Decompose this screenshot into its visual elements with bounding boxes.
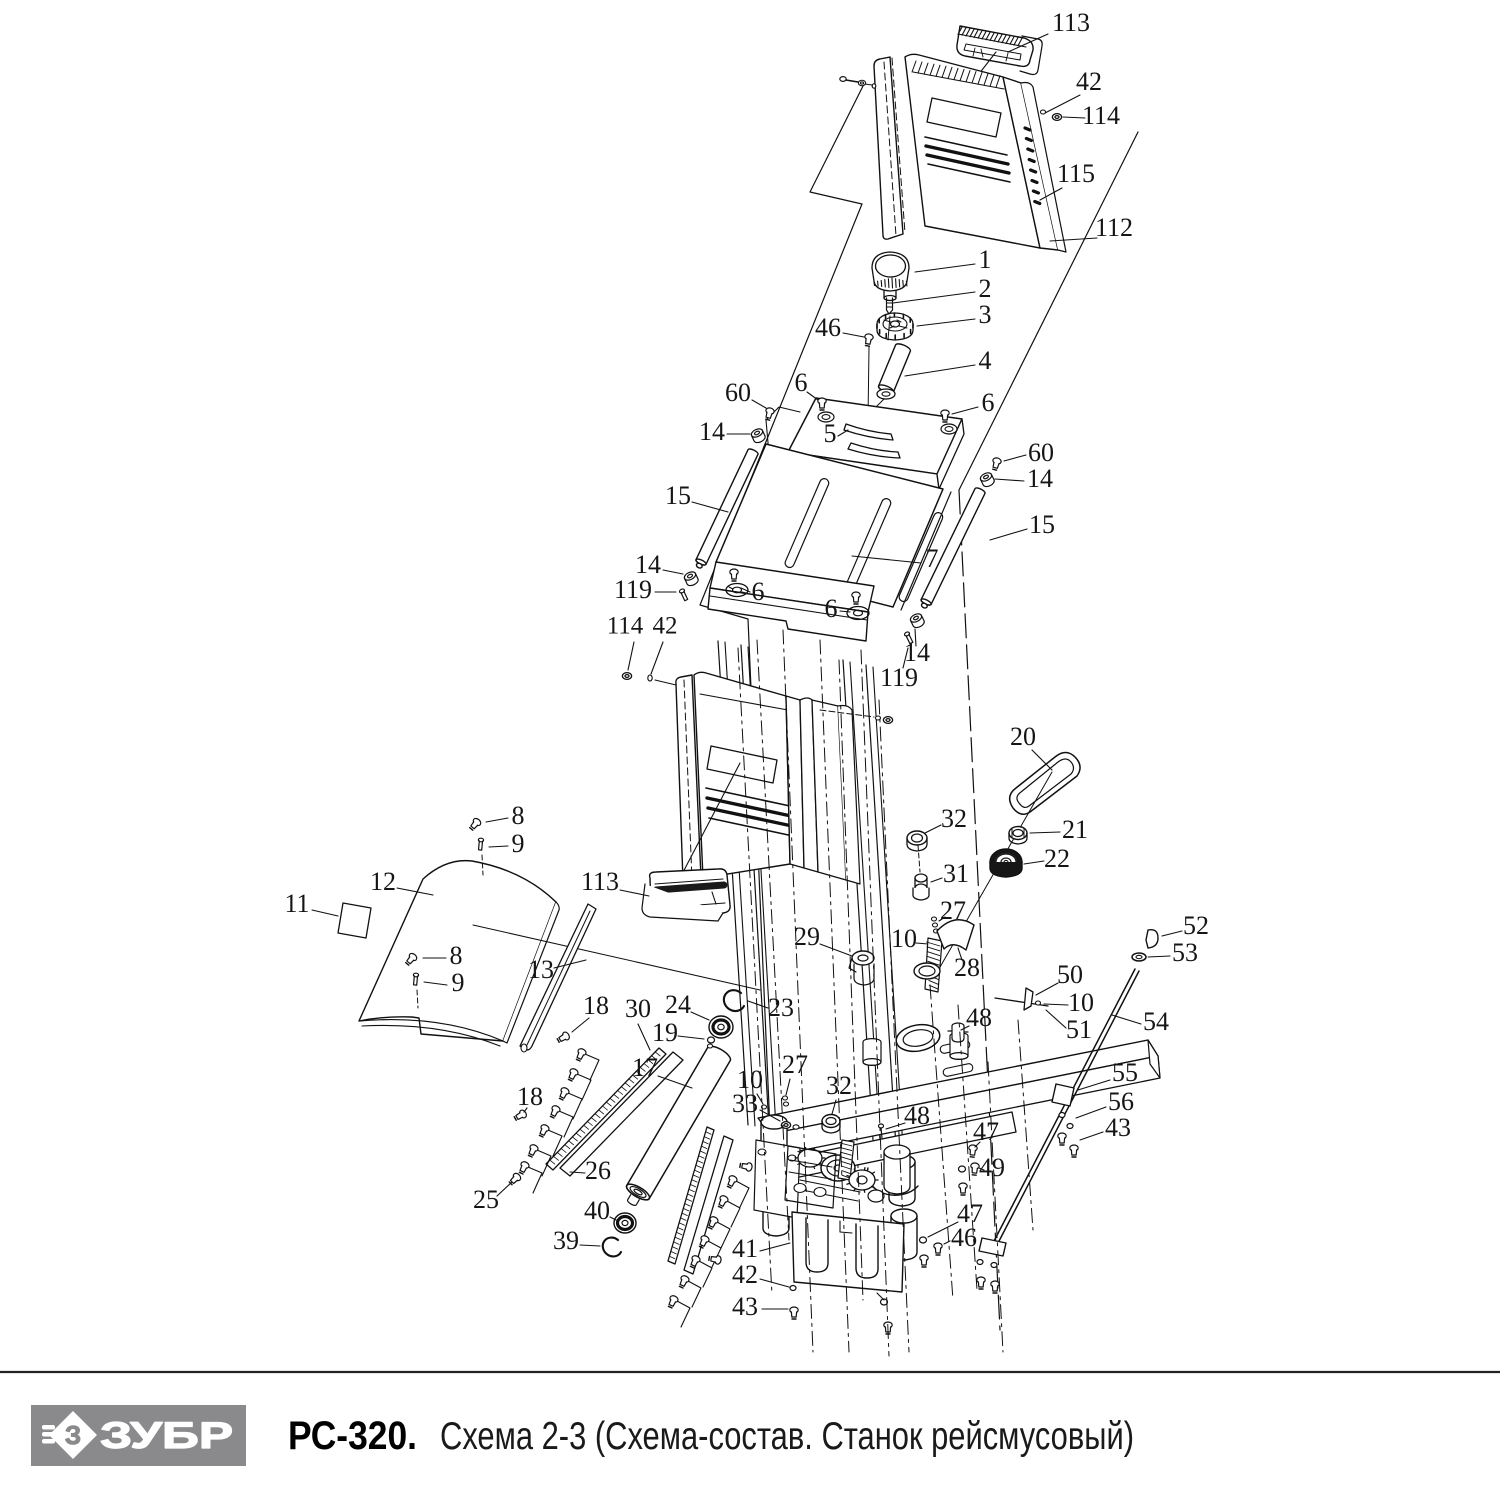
svg-text:12: 12 xyxy=(370,867,396,896)
svg-text:32: 32 xyxy=(826,1071,852,1100)
svg-text:3: 3 xyxy=(979,300,992,329)
svg-text:8: 8 xyxy=(450,941,463,970)
svg-text:14: 14 xyxy=(699,417,725,446)
svg-text:113: 113 xyxy=(1052,8,1090,37)
svg-text:114: 114 xyxy=(607,613,644,640)
svg-text:27: 27 xyxy=(782,1050,808,1079)
svg-text:20: 20 xyxy=(1010,722,1036,751)
svg-text:11: 11 xyxy=(284,889,309,918)
svg-text:25: 25 xyxy=(473,1185,499,1214)
svg-text:56: 56 xyxy=(1108,1087,1134,1116)
svg-text:9: 9 xyxy=(452,968,465,997)
svg-text:23: 23 xyxy=(768,993,794,1022)
svg-text:8: 8 xyxy=(512,801,525,830)
svg-text:7: 7 xyxy=(926,544,939,573)
svg-text:41: 41 xyxy=(732,1234,758,1263)
svg-text:55: 55 xyxy=(1112,1058,1138,1087)
svg-text:21: 21 xyxy=(1062,815,1088,844)
svg-text:119: 119 xyxy=(614,575,652,604)
svg-text:6: 6 xyxy=(795,368,808,397)
svg-text:60: 60 xyxy=(1028,438,1054,467)
svg-text:43: 43 xyxy=(1105,1113,1131,1142)
svg-text:113: 113 xyxy=(581,867,619,896)
svg-text:13: 13 xyxy=(528,955,554,984)
svg-text:4: 4 xyxy=(979,346,992,375)
svg-text:48: 48 xyxy=(966,1003,992,1032)
svg-text:6: 6 xyxy=(825,594,838,623)
svg-text:46: 46 xyxy=(815,313,841,342)
svg-text:ЗУБР: ЗУБР xyxy=(100,1415,233,1456)
svg-text:22: 22 xyxy=(1044,844,1070,873)
svg-text:51: 51 xyxy=(1066,1015,1092,1044)
svg-text:48: 48 xyxy=(904,1101,930,1130)
svg-text:6: 6 xyxy=(752,577,765,606)
svg-text:60: 60 xyxy=(725,378,751,407)
svg-text:1: 1 xyxy=(979,245,992,274)
svg-text:30: 30 xyxy=(625,994,651,1023)
svg-text:9: 9 xyxy=(512,829,525,858)
svg-text:10: 10 xyxy=(737,1065,763,1094)
svg-text:14: 14 xyxy=(1027,464,1053,493)
svg-text:З: З xyxy=(65,1420,81,1450)
svg-text:115: 115 xyxy=(1057,159,1095,188)
svg-text:112: 112 xyxy=(1095,213,1133,242)
svg-text:43: 43 xyxy=(732,1292,758,1321)
svg-text:18: 18 xyxy=(517,1082,543,1111)
svg-text:2: 2 xyxy=(979,274,992,303)
svg-text:53: 53 xyxy=(1172,938,1198,967)
svg-text:18: 18 xyxy=(583,991,609,1020)
svg-text:114: 114 xyxy=(1082,101,1120,130)
svg-text:42: 42 xyxy=(732,1260,758,1289)
svg-text:15: 15 xyxy=(1029,510,1055,539)
svg-text:31: 31 xyxy=(943,859,969,888)
svg-text:39: 39 xyxy=(553,1226,579,1255)
svg-text:119: 119 xyxy=(880,663,918,692)
svg-text:19: 19 xyxy=(652,1018,678,1047)
svg-text:10: 10 xyxy=(891,924,917,953)
svg-text:49: 49 xyxy=(979,1153,1005,1182)
svg-text:40: 40 xyxy=(584,1196,610,1225)
svg-text:52: 52 xyxy=(1183,911,1209,940)
svg-text:50: 50 xyxy=(1057,960,1083,989)
svg-text:Схема 2-3 (Схема-состав. Стано: Схема 2-3 (Схема-состав. Станок рейсмусо… xyxy=(440,1415,1134,1458)
svg-text:РС-320.: РС-320. xyxy=(288,1414,417,1458)
svg-text:42: 42 xyxy=(653,613,678,640)
svg-text:6: 6 xyxy=(982,388,995,417)
svg-text:17: 17 xyxy=(632,1053,658,1082)
svg-text:32: 32 xyxy=(941,804,967,833)
svg-text:47: 47 xyxy=(973,1117,999,1146)
svg-text:24: 24 xyxy=(665,990,691,1019)
svg-text:29: 29 xyxy=(794,922,820,951)
svg-text:42: 42 xyxy=(1076,67,1102,96)
svg-text:26: 26 xyxy=(585,1156,611,1185)
svg-text:54: 54 xyxy=(1143,1007,1169,1036)
svg-text:10: 10 xyxy=(1068,988,1094,1017)
svg-text:28: 28 xyxy=(954,953,980,982)
svg-text:15: 15 xyxy=(665,481,691,510)
svg-text:5: 5 xyxy=(824,419,837,448)
